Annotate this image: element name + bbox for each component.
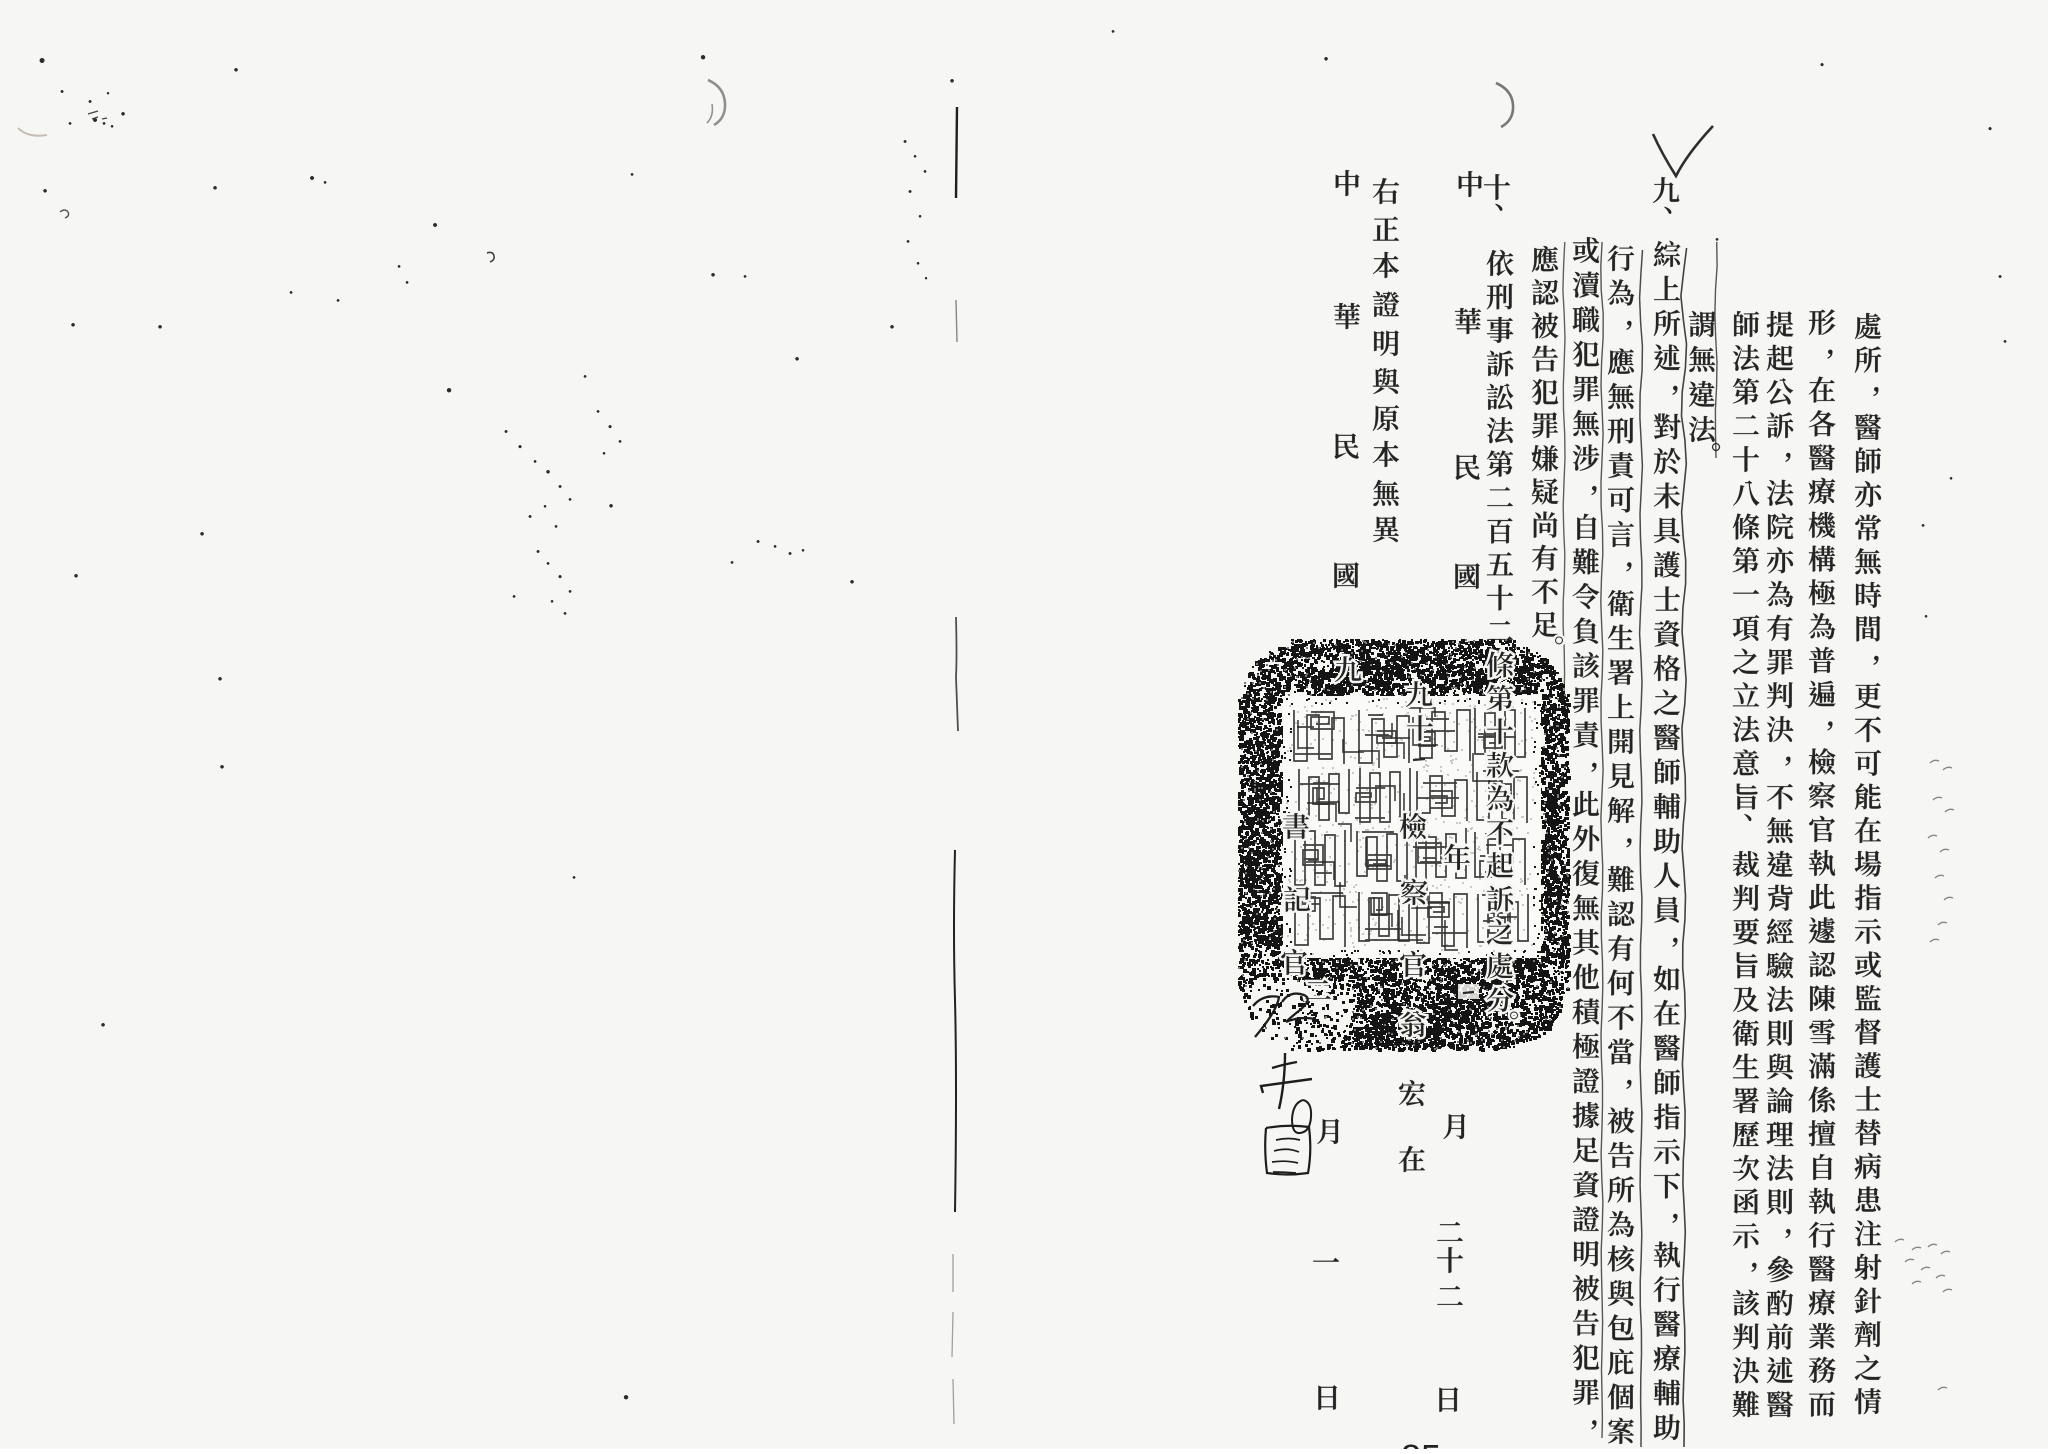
svg-text:85: 85 (1401, 1437, 1441, 1449)
